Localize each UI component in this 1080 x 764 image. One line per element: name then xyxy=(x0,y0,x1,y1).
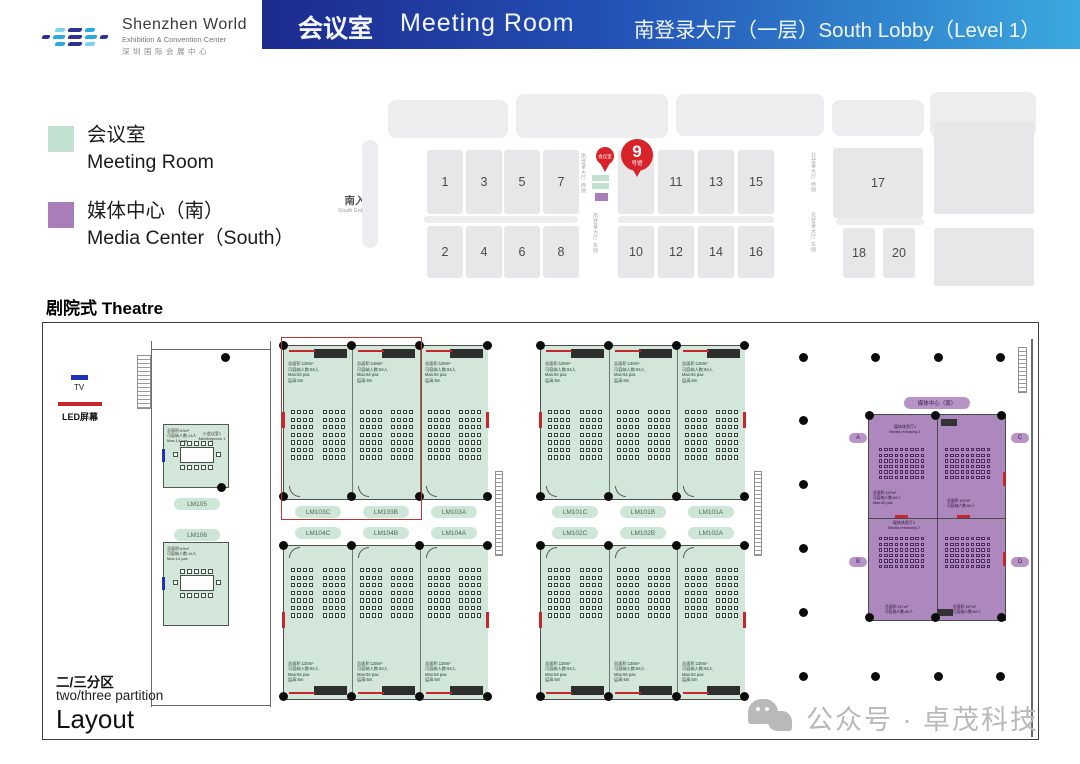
seat xyxy=(884,476,887,479)
seat xyxy=(291,591,295,595)
seat xyxy=(446,418,450,422)
seat xyxy=(477,598,481,602)
seat xyxy=(654,455,658,459)
seat xyxy=(592,425,596,429)
seat xyxy=(309,568,313,572)
column-dot xyxy=(483,341,492,350)
seat xyxy=(554,440,558,444)
seat xyxy=(554,583,558,587)
seat xyxy=(921,476,924,479)
seat xyxy=(666,591,670,595)
seat xyxy=(592,433,596,437)
seat xyxy=(341,576,345,580)
page: Shenzhen World Exhibition & Convention C… xyxy=(0,0,1080,764)
seat xyxy=(459,613,463,617)
seat xyxy=(554,418,558,422)
seat xyxy=(697,425,701,429)
highlight-selection-box xyxy=(281,337,422,520)
seat xyxy=(629,606,633,610)
stage xyxy=(382,686,415,695)
column-dot xyxy=(799,480,808,489)
seat xyxy=(884,448,887,451)
media-spec: 总面积:157m² 可容纳人数:60人 xyxy=(885,605,913,615)
partition-label-en: two/three partition xyxy=(56,688,163,703)
room-LM102B: 总面积:138m²可容纳人数:64人Max:64 pax层高:6m xyxy=(609,546,677,698)
seat xyxy=(335,576,339,580)
seat xyxy=(945,454,948,457)
board-table xyxy=(180,447,214,463)
seat xyxy=(895,465,898,468)
seat xyxy=(554,455,558,459)
seat xyxy=(409,576,413,580)
seat xyxy=(303,583,307,587)
column-dot xyxy=(740,341,749,350)
south-lobby-west-label: 南登录大厅 西侧 xyxy=(580,153,587,193)
overview-building-shape xyxy=(676,94,824,136)
seat xyxy=(635,418,639,422)
south-lobby-east-label: 南登录大厅 东侧 xyxy=(592,213,599,253)
seat xyxy=(697,591,701,595)
seat-group xyxy=(428,568,450,618)
seat xyxy=(297,576,301,580)
seat xyxy=(945,548,948,551)
column-dot xyxy=(604,341,613,350)
column-dot xyxy=(740,492,749,501)
seat xyxy=(966,476,969,479)
seat xyxy=(900,565,903,568)
seat xyxy=(879,448,882,451)
seat xyxy=(360,568,364,572)
seat xyxy=(905,465,908,468)
seat xyxy=(440,591,444,595)
seat xyxy=(635,568,639,572)
seat xyxy=(895,476,898,479)
door-arc xyxy=(615,547,626,558)
seat xyxy=(950,465,953,468)
seat xyxy=(560,440,564,444)
seat xyxy=(697,606,701,610)
seat xyxy=(629,613,633,617)
seat xyxy=(685,410,689,414)
room-name: 小会议室1Meetingroom 1 xyxy=(198,431,226,441)
seat xyxy=(722,606,726,610)
seat xyxy=(889,537,892,540)
east-wall-hatch xyxy=(1018,347,1027,393)
stage xyxy=(450,349,483,358)
seat xyxy=(691,425,695,429)
seat xyxy=(592,410,596,414)
room-label-LM104A: LM104A xyxy=(431,527,477,539)
seat xyxy=(905,448,908,451)
seat xyxy=(554,433,558,437)
column-dot xyxy=(415,692,424,701)
seat-group xyxy=(617,410,639,460)
seat xyxy=(378,606,382,610)
seat xyxy=(716,576,720,580)
seat-group xyxy=(323,568,345,618)
seat xyxy=(921,554,924,557)
legend: 会议室 Meeting Room 媒体中心（南） Media Center（So… xyxy=(48,122,294,274)
seat xyxy=(329,591,333,595)
hall-15: 15 xyxy=(738,150,774,214)
seat xyxy=(900,476,903,479)
theatre-seats xyxy=(428,568,481,618)
seat xyxy=(728,606,732,610)
seat xyxy=(471,568,475,572)
seat xyxy=(459,568,463,572)
hall-5: 5 xyxy=(504,150,540,214)
seat xyxy=(654,425,658,429)
seat xyxy=(566,598,570,602)
seat xyxy=(566,440,570,444)
seat xyxy=(895,448,898,451)
seat xyxy=(955,565,958,568)
seat xyxy=(586,448,590,452)
seat xyxy=(697,583,701,587)
chair xyxy=(208,593,213,598)
chair xyxy=(194,569,199,574)
seat xyxy=(950,554,953,557)
seat xyxy=(660,613,664,617)
seat xyxy=(459,433,463,437)
seat xyxy=(635,583,639,587)
seat xyxy=(895,537,898,540)
media-spec: 总面积:157m² 可容纳人数:60人 xyxy=(947,499,975,509)
seat xyxy=(372,591,376,595)
seat xyxy=(921,543,924,546)
seat xyxy=(734,613,738,617)
seat xyxy=(391,576,395,580)
seat xyxy=(566,418,570,422)
seat xyxy=(446,568,450,572)
seat xyxy=(666,455,670,459)
seat-group xyxy=(360,568,382,618)
seat xyxy=(397,613,401,617)
seat xyxy=(434,583,438,587)
seat xyxy=(446,448,450,452)
seat xyxy=(910,543,913,546)
seat xyxy=(716,591,720,595)
seat xyxy=(465,583,469,587)
seat xyxy=(728,433,732,437)
seat xyxy=(291,568,295,572)
seat xyxy=(666,425,670,429)
seat xyxy=(629,598,633,602)
seat xyxy=(961,548,964,551)
seat xyxy=(397,598,401,602)
seat xyxy=(560,425,564,429)
seat xyxy=(580,576,584,580)
overview-building-shape xyxy=(516,94,668,138)
seat xyxy=(654,606,658,610)
seat xyxy=(950,548,953,551)
seat xyxy=(703,425,707,429)
seat-group xyxy=(685,410,707,460)
seat xyxy=(554,591,558,595)
seat xyxy=(950,476,953,479)
seat xyxy=(728,598,732,602)
stage xyxy=(450,686,483,695)
seat xyxy=(341,591,345,595)
seat xyxy=(403,606,407,610)
seat xyxy=(434,418,438,422)
seat xyxy=(910,559,913,562)
seat xyxy=(654,433,658,437)
column-dot xyxy=(279,541,288,550)
seat xyxy=(987,459,990,462)
seat xyxy=(976,476,979,479)
seat xyxy=(548,591,552,595)
led-screen-line xyxy=(358,692,384,694)
media-spec: 总面积:157m² 可容纳人数:60人 Max:60 pax xyxy=(873,491,901,505)
seat xyxy=(905,537,908,540)
meeting-room-pin: 会议室 xyxy=(596,147,614,165)
seat xyxy=(548,606,552,610)
room-label-LM106: LM106 xyxy=(174,529,220,541)
seat xyxy=(471,418,475,422)
seat-group xyxy=(580,568,602,618)
column-dot xyxy=(604,692,613,701)
seat xyxy=(955,454,958,457)
seat xyxy=(734,440,738,444)
seat xyxy=(465,440,469,444)
seat xyxy=(580,448,584,452)
seat xyxy=(734,583,738,587)
seat xyxy=(884,554,887,557)
seat xyxy=(635,606,639,610)
seat xyxy=(446,440,450,444)
seat xyxy=(966,465,969,468)
seat xyxy=(716,583,720,587)
seat xyxy=(722,591,726,595)
media-center-swatch xyxy=(48,202,74,228)
seat xyxy=(910,448,913,451)
seat xyxy=(477,433,481,437)
column-dot xyxy=(604,492,613,501)
seat xyxy=(884,459,887,462)
seat xyxy=(586,410,590,414)
east-wall-line xyxy=(1031,339,1033,737)
seat xyxy=(598,418,602,422)
plan-title: 剧院式 Theatre xyxy=(46,294,163,319)
seat xyxy=(971,565,974,568)
seat xyxy=(728,576,732,580)
seat xyxy=(323,606,327,610)
media-seats-bl xyxy=(879,537,924,568)
seat xyxy=(566,425,570,429)
overview-building-shape xyxy=(388,100,508,138)
seat xyxy=(722,425,726,429)
seat xyxy=(889,459,892,462)
seat xyxy=(697,598,701,602)
media-room2-label: 媒体休息厅2 Media releasing 2 xyxy=(882,520,926,530)
seat xyxy=(889,559,892,562)
seat xyxy=(548,576,552,580)
seat xyxy=(378,598,382,602)
seat xyxy=(598,576,602,580)
seat xyxy=(598,433,602,437)
seat xyxy=(685,455,689,459)
column-dot xyxy=(483,492,492,501)
theatre-seats xyxy=(360,568,413,618)
seat xyxy=(560,433,564,437)
seat xyxy=(446,455,450,459)
seat xyxy=(378,568,382,572)
hall-7: 7 xyxy=(543,150,579,214)
hall-13: 13 xyxy=(698,150,734,214)
seat xyxy=(971,465,974,468)
seat xyxy=(560,568,564,572)
seat xyxy=(465,598,469,602)
seat xyxy=(477,455,481,459)
led-tick xyxy=(282,612,285,628)
seat xyxy=(961,454,964,457)
seat xyxy=(566,448,570,452)
seat xyxy=(366,568,370,572)
seat xyxy=(981,476,984,479)
seat xyxy=(889,465,892,468)
hall-block xyxy=(934,228,1034,286)
stage xyxy=(639,349,672,358)
seat xyxy=(554,606,558,610)
seat xyxy=(477,410,481,414)
seat xyxy=(976,565,979,568)
chair xyxy=(187,465,192,470)
legend-item-media-center: 媒体中心（南） Media Center（South） xyxy=(48,198,294,252)
seat xyxy=(976,554,979,557)
seat xyxy=(428,425,432,429)
door-arc xyxy=(546,486,557,497)
seat xyxy=(617,576,621,580)
seat xyxy=(617,598,621,602)
seat xyxy=(459,598,463,602)
seat xyxy=(921,465,924,468)
column-dot xyxy=(865,613,874,622)
seat xyxy=(303,606,307,610)
seat xyxy=(629,455,633,459)
chair xyxy=(201,593,206,598)
theatre-seats xyxy=(685,410,738,460)
seat xyxy=(471,583,475,587)
seat xyxy=(879,476,882,479)
chair xyxy=(208,465,213,470)
seat xyxy=(697,613,701,617)
watermark-text: 公众号 · 卓茂科技 xyxy=(806,698,1039,737)
seat xyxy=(360,583,364,587)
seat xyxy=(548,433,552,437)
seat xyxy=(691,591,695,595)
seat xyxy=(403,576,407,580)
seat xyxy=(966,565,969,568)
seat xyxy=(910,476,913,479)
meeting-room-swatch xyxy=(48,126,74,152)
seat xyxy=(966,470,969,473)
column-dot xyxy=(347,541,356,550)
corridor-hatch xyxy=(495,471,503,556)
door-arc xyxy=(289,547,300,558)
seat xyxy=(477,576,481,580)
room-spec: 总面积:138m²可容纳人数:64人Max:64 pax层高:6m xyxy=(288,661,332,683)
seat-group xyxy=(617,568,639,618)
seat xyxy=(685,613,689,617)
seat xyxy=(961,470,964,473)
seat xyxy=(598,440,602,444)
seat xyxy=(598,448,602,452)
seat xyxy=(666,613,670,617)
column-dot xyxy=(536,692,545,701)
seat xyxy=(648,410,652,414)
overview-building-shape xyxy=(424,216,578,223)
seat xyxy=(465,606,469,610)
seat xyxy=(440,410,444,414)
seat xyxy=(660,568,664,572)
seat xyxy=(465,425,469,429)
seat xyxy=(446,576,450,580)
seat xyxy=(629,418,633,422)
seat xyxy=(879,565,882,568)
seat xyxy=(900,448,903,451)
seat xyxy=(303,591,307,595)
seat xyxy=(879,470,882,473)
seat xyxy=(971,548,974,551)
seat xyxy=(471,440,475,444)
seat xyxy=(471,425,475,429)
seat xyxy=(703,583,707,587)
seat xyxy=(648,583,652,587)
seat xyxy=(465,613,469,617)
seat xyxy=(879,465,882,468)
seat xyxy=(900,543,903,546)
seat xyxy=(323,568,327,572)
seat xyxy=(722,598,726,602)
seat xyxy=(691,568,695,572)
seat xyxy=(428,598,432,602)
seat xyxy=(915,537,918,540)
seat xyxy=(598,591,602,595)
seat xyxy=(403,568,407,572)
seat xyxy=(976,465,979,468)
seat xyxy=(598,455,602,459)
seat xyxy=(691,576,695,580)
seat xyxy=(428,448,432,452)
chair xyxy=(180,465,185,470)
seat xyxy=(440,598,444,602)
led-screen-line xyxy=(546,350,572,352)
seat xyxy=(654,448,658,452)
seat xyxy=(428,591,432,595)
seat xyxy=(428,440,432,444)
seat xyxy=(691,448,695,452)
header-title-cn: 会议室 xyxy=(298,9,373,45)
seat xyxy=(560,591,564,595)
seat xyxy=(617,433,621,437)
seat xyxy=(961,543,964,546)
seat xyxy=(617,583,621,587)
led-screen-line xyxy=(615,692,641,694)
seat xyxy=(734,418,738,422)
seat xyxy=(981,454,984,457)
room-spec: 总面积:138m²可容纳人数:64人Max:64 pax层高:6m xyxy=(545,361,589,383)
door-arc xyxy=(683,547,694,558)
seat xyxy=(297,591,301,595)
seat xyxy=(329,598,333,602)
seat xyxy=(297,606,301,610)
seat xyxy=(889,448,892,451)
seat xyxy=(446,425,450,429)
seat xyxy=(586,598,590,602)
seat xyxy=(329,583,333,587)
seat xyxy=(617,418,621,422)
